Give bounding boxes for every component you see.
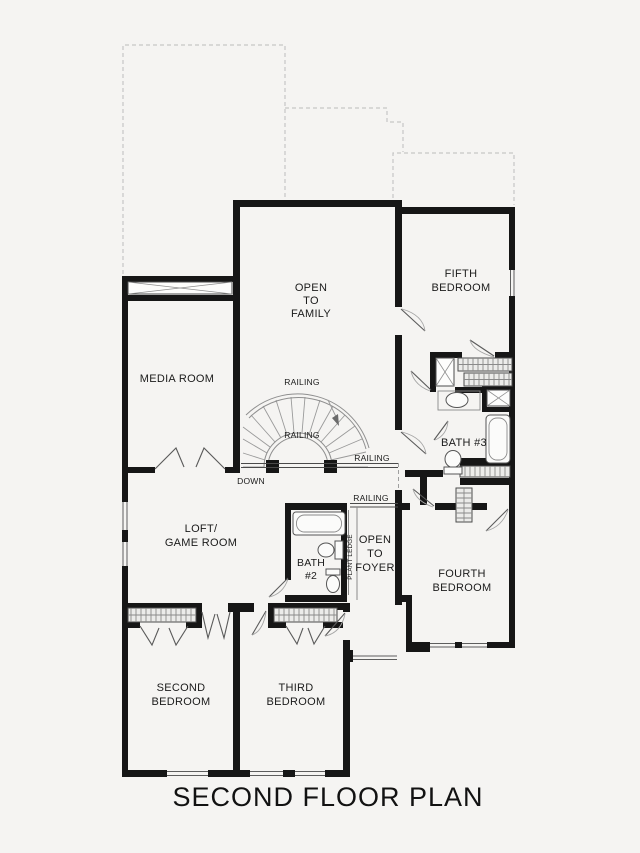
room-label-second-bedroom: SECOND — [157, 682, 206, 694]
plant-ledge-label: PLANT LEDGE — [347, 534, 354, 579]
shower — [487, 390, 510, 406]
media-room-double-door — [155, 448, 225, 469]
room-label-open-to-family: TO — [303, 295, 319, 307]
bath3-closet-shelf — [456, 466, 510, 522]
stair-direction-arrow — [328, 400, 339, 426]
railing-label: RAILING — [284, 430, 319, 440]
railing-label: RAILING — [284, 377, 319, 387]
third-bedroom-closet-shelf — [274, 608, 337, 622]
room-label-loft-game-room: LOFT/ — [185, 523, 218, 535]
room-label-second-bedroom: BEDROOM — [152, 696, 211, 708]
railing-label: RAILING — [354, 453, 389, 463]
room-label-open-to-foyer: TO — [367, 548, 383, 560]
room-label-bath2: BATH — [297, 557, 325, 569]
room-label-fifth-bedroom: BEDROOM — [432, 282, 491, 294]
room-label-fifth-bedroom: FIFTH — [445, 268, 478, 280]
room-label-bath3: BATH #3 — [441, 437, 487, 449]
room-label-fourth-bedroom: FOURTH — [438, 568, 485, 580]
linen-closet — [436, 358, 454, 386]
bath2-fixtures — [293, 512, 345, 593]
toilet — [444, 451, 462, 475]
room-label-media-room: MEDIA ROOM — [140, 373, 215, 385]
third-bedroom-closet-doors — [286, 626, 325, 644]
roof-outline — [123, 45, 514, 274]
room-label-open-to-family: OPEN — [295, 282, 327, 294]
room-label-third-bedroom: BEDROOM — [267, 696, 326, 708]
bathtub — [293, 512, 345, 535]
room-label-bath2: #2 — [305, 570, 317, 582]
down-label: DOWN — [237, 476, 265, 486]
room-label-third-bedroom: THIRD — [278, 682, 313, 694]
attic-box — [128, 282, 232, 294]
bathtub — [486, 415, 510, 463]
toilet — [326, 569, 340, 593]
fifth-bedroom-closet-shelf — [458, 358, 512, 386]
fifth-bedroom-closet-door — [470, 340, 494, 357]
second-bedroom-closet-shelf — [128, 608, 196, 622]
room-label-fourth-bedroom: BEDROOM — [433, 582, 492, 594]
room-label-loft-game-room: GAME ROOM — [165, 537, 237, 549]
second-bedroom-closet-doors — [140, 626, 188, 645]
second-bedroom-entry-door — [202, 612, 230, 638]
railing-label: RAILING — [353, 493, 388, 503]
fifth-bedroom-door — [401, 309, 425, 331]
room-label-open-to-family: FAMILY — [291, 308, 331, 320]
hall-door — [401, 432, 426, 454]
floor-plan-page: OPEN TO FAMILY FIFTH BEDROOM MEDIA ROOM … — [0, 0, 640, 853]
vanity-sink — [438, 391, 480, 410]
room-label-open-to-foyer: OPEN — [359, 534, 391, 546]
room-label-open-to-foyer: FOYER — [355, 562, 394, 574]
floor-plan-drawing: OPEN TO FAMILY FIFTH BEDROOM MEDIA ROOM … — [0, 0, 640, 853]
bath2-door — [269, 578, 288, 597]
plan-title: SECOND FLOOR PLAN — [172, 782, 483, 812]
stair-newel-posts — [266, 460, 337, 473]
